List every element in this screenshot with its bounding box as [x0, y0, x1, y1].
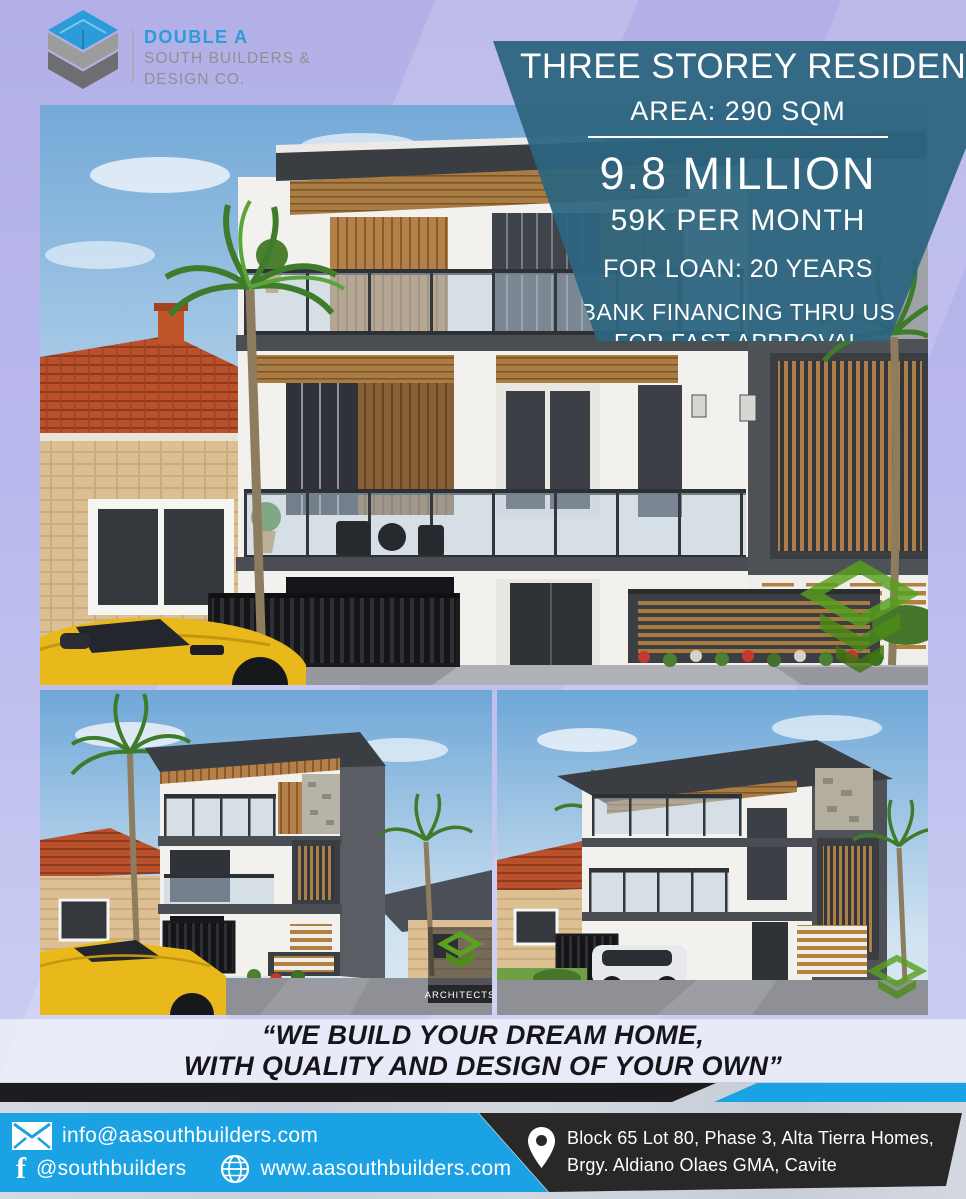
facebook-icon: f: [16, 1155, 26, 1183]
offer-price: 9.8 MILLION: [520, 148, 956, 200]
offer-monthly: 59K PER MONTH: [520, 204, 956, 238]
brand-name: DOUBLE A: [144, 28, 311, 46]
globe-icon: [220, 1154, 250, 1184]
quote-line2: WITH QUALITY AND DESIGN OF YOUR OWN”: [184, 1051, 782, 1082]
brand-logo: DOUBLE A SOUTH BUILDERS & DESIGN CO.: [46, 8, 366, 108]
flyer-poster: DOUBLE A SOUTH BUILDERS & DESIGN CO.: [0, 0, 966, 1199]
website-text[interactable]: www.aasouthbuilders.com: [260, 1157, 511, 1181]
architects-watermark: ARCHITECTS: [425, 927, 492, 1003]
facebook-handle[interactable]: @southbuilders: [36, 1157, 186, 1181]
offer-loan-term: FOR LOAN: 20 YEARS: [520, 255, 956, 284]
offer-title: THREE STOREY RESIDENTIAL: [520, 47, 956, 87]
brand-sub2: DESIGN CO.: [144, 72, 311, 88]
address-line1: Block 65 Lot 80, Phase 3, Alta Tierra Ho…: [567, 1125, 934, 1152]
address-line2: Brgy. Aldiano Olaes GMA, Cavite: [567, 1152, 934, 1179]
quote-line1: “WE BUILD YOUR DREAM HOME,: [262, 1020, 704, 1051]
brand-sub1: SOUTH BUILDERS &: [144, 51, 311, 67]
social-row: f @southbuilders www.aasouthbuilders.com: [16, 1154, 511, 1184]
logo-divider: [132, 30, 134, 82]
gallery-photo-left: ARCHITECTS: [40, 690, 492, 1015]
email-row[interactable]: info@aasouthbuilders.com: [12, 1122, 318, 1150]
address-block: Block 65 Lot 80, Phase 3, Alta Tierra Ho…: [567, 1125, 934, 1179]
location-pin-icon: [528, 1127, 555, 1173]
gallery-photo-right: [497, 690, 928, 1015]
email-text[interactable]: info@aasouthbuilders.com: [62, 1124, 318, 1148]
offer-area: AREA: 290 SQM: [520, 96, 956, 127]
quote-band: “WE BUILD YOUR DREAM HOME, WITH QUALITY …: [0, 1019, 966, 1082]
cube-logo-icon: [46, 8, 120, 100]
watermark-text: ARCHITECTS: [425, 990, 492, 1001]
envelope-icon: [12, 1122, 52, 1150]
house-angle-left: [145, 732, 386, 985]
area-underline: [588, 136, 888, 138]
